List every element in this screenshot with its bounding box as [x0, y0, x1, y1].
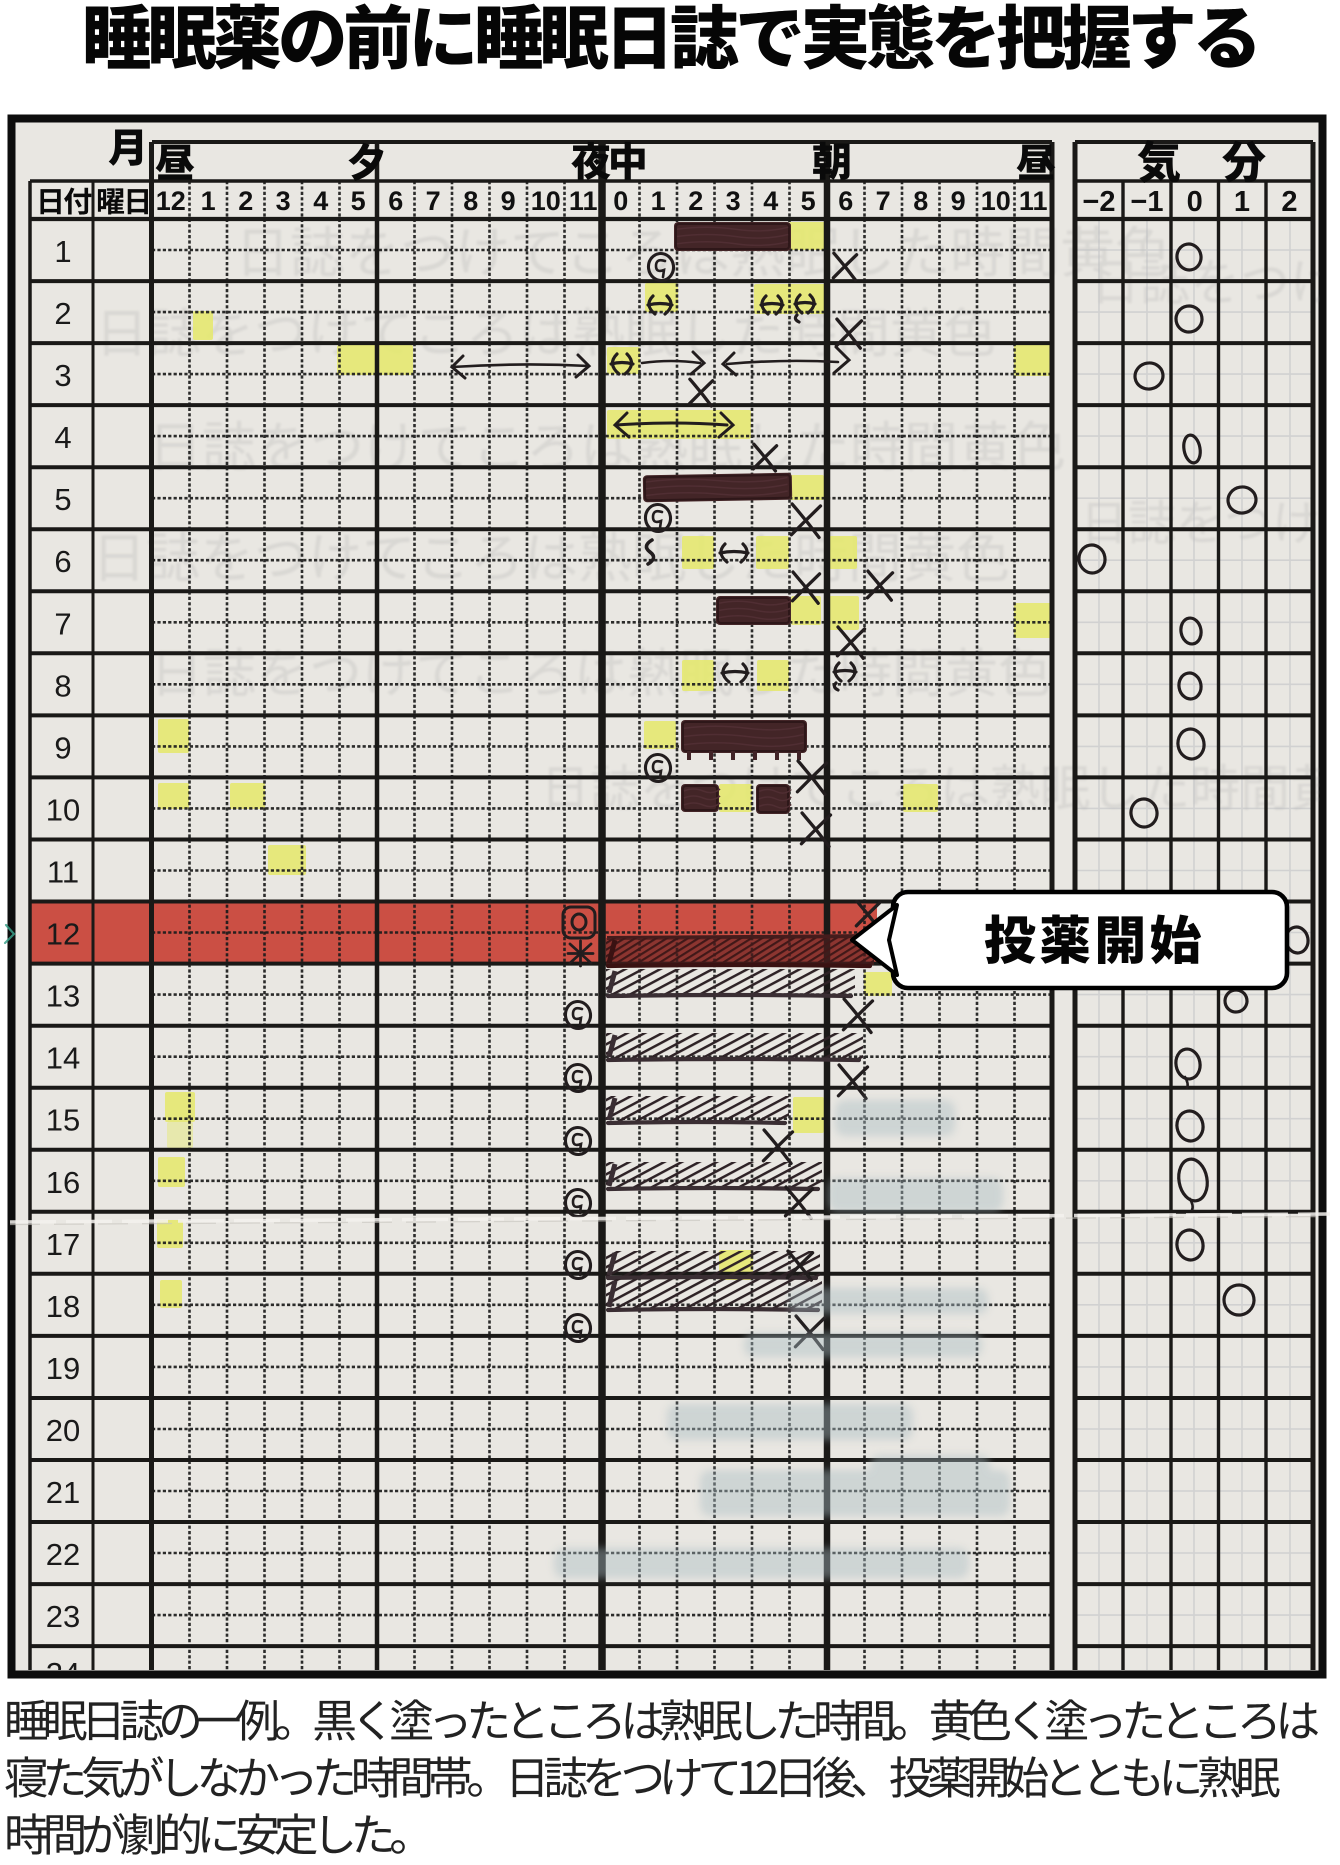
svg-text:1: 1	[1234, 186, 1250, 218]
svg-text:12: 12	[46, 917, 80, 952]
svg-text:4: 4	[313, 186, 328, 216]
svg-text:6: 6	[388, 186, 403, 216]
svg-text:2: 2	[54, 296, 71, 331]
svg-text:5: 5	[54, 482, 71, 517]
svg-text:1: 1	[651, 186, 666, 216]
svg-text:−2: −2	[1082, 186, 1115, 218]
svg-text:5: 5	[801, 186, 816, 216]
svg-text:1: 1	[201, 186, 216, 216]
svg-text:2: 2	[1281, 186, 1297, 218]
svg-text:7: 7	[876, 186, 891, 216]
svg-text:12: 12	[156, 186, 186, 216]
svg-text:23: 23	[46, 1599, 80, 1634]
svg-text:16: 16	[46, 1165, 80, 1200]
svg-text:10: 10	[981, 186, 1011, 216]
svg-text:5: 5	[351, 186, 366, 216]
svg-text:14: 14	[46, 1041, 80, 1076]
svg-text:18: 18	[46, 1289, 80, 1324]
svg-text:2: 2	[688, 186, 703, 216]
svg-text:0: 0	[613, 186, 628, 216]
svg-text:7: 7	[54, 606, 71, 641]
svg-text:11: 11	[1019, 186, 1048, 216]
svg-text:4: 4	[54, 420, 71, 455]
svg-text:8: 8	[913, 186, 928, 216]
svg-text:0: 0	[1187, 186, 1203, 218]
svg-text:15: 15	[46, 1103, 80, 1138]
svg-text:21: 21	[46, 1475, 80, 1510]
svg-text:17: 17	[46, 1227, 80, 1262]
svg-text:6: 6	[54, 544, 71, 579]
svg-text:22: 22	[46, 1537, 80, 1572]
svg-text:11: 11	[47, 855, 79, 890]
svg-text:1: 1	[54, 234, 71, 269]
svg-text:19: 19	[46, 1351, 80, 1386]
svg-text:6: 6	[838, 186, 853, 216]
svg-text:9: 9	[501, 186, 516, 216]
svg-text:13: 13	[46, 979, 80, 1014]
svg-text:10: 10	[46, 792, 80, 827]
svg-text:10: 10	[531, 186, 561, 216]
svg-text:7: 7	[426, 186, 441, 216]
svg-text:8: 8	[54, 668, 71, 703]
svg-text:3: 3	[726, 186, 741, 216]
svg-text:−1: −1	[1130, 186, 1163, 218]
svg-text:20: 20	[46, 1413, 80, 1448]
svg-text:2: 2	[238, 186, 253, 216]
svg-text:11: 11	[569, 186, 598, 216]
svg-text:8: 8	[463, 186, 478, 216]
svg-text:9: 9	[951, 186, 966, 216]
svg-text:3: 3	[276, 186, 291, 216]
svg-text:3: 3	[54, 358, 71, 393]
svg-text:9: 9	[54, 730, 71, 765]
svg-text:4: 4	[763, 186, 778, 216]
